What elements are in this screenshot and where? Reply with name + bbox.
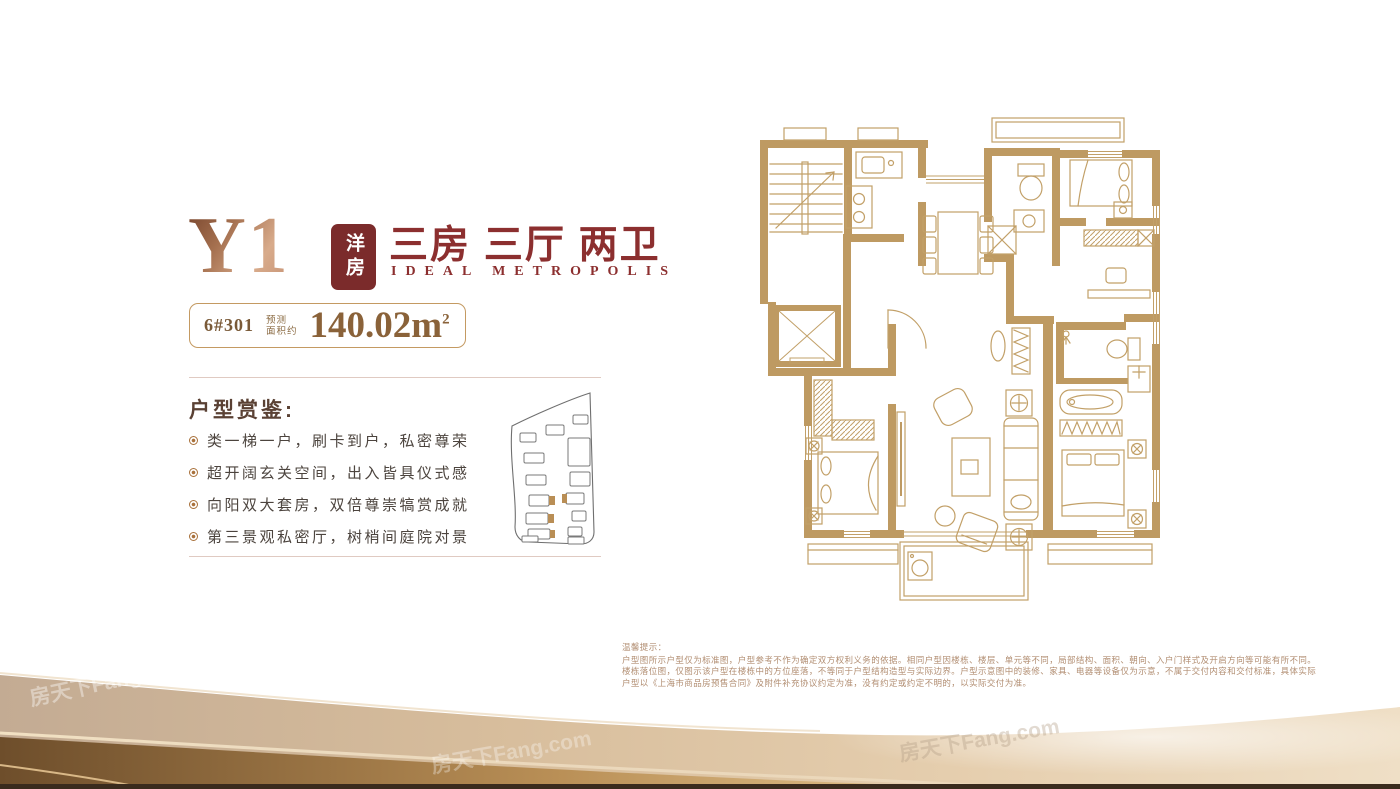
unit-type-badge: 洋房	[331, 224, 376, 290]
floorplan-poster: Y1 洋房 三房 三厅 两卫 IDEAL METROPOLIS 6#301 预测…	[0, 0, 1400, 789]
list-item: 类一梯一户，刷卡到户，私密尊荣	[189, 430, 470, 451]
bullet-icon	[189, 436, 198, 445]
washing-machine	[908, 552, 932, 580]
staircase	[770, 162, 842, 234]
bullet-icon	[189, 468, 198, 477]
page-title: 三房 三厅 两卫	[389, 214, 661, 270]
bathtub	[1060, 390, 1122, 436]
study-area	[1084, 230, 1154, 298]
area-approx-label: 预测 面积约	[266, 315, 298, 337]
bullet-icon	[189, 532, 198, 541]
area-box: 6#301 预测 面积约 140.02m2	[189, 303, 466, 348]
area-value: 140.02m2	[310, 307, 450, 344]
dining-table	[923, 212, 993, 274]
hall-cabinet	[991, 328, 1030, 374]
list-item: 第三景观私密厅，树梢间庭院对景	[189, 526, 470, 547]
list-item: 向阳双大套房，双倍尊崇犒赏成就	[189, 494, 470, 515]
floorplan-drawing	[740, 106, 1205, 621]
windows	[806, 152, 1160, 538]
divider-top	[189, 377, 601, 378]
bedroom-bottom-right	[1062, 440, 1146, 528]
features-list: 类一梯一户，刷卡到户，私密尊荣 超开阔玄关空间，出入皆具仪式感 向阳双大套房，双…	[189, 430, 470, 558]
page-subtitle: IDEAL METROPOLIS	[391, 264, 677, 280]
building-location-diagram	[496, 386, 602, 550]
gold-ribbon-decoration	[0, 619, 1400, 789]
bullet-icon	[189, 500, 198, 509]
features-heading: 户型赏鉴:	[189, 394, 295, 424]
elevator	[776, 308, 838, 364]
divider-bottom	[189, 556, 601, 557]
building-room-number: 6#301	[204, 315, 254, 336]
list-item: 超开阔玄关空间，出入皆具仪式感	[189, 462, 470, 483]
bedroom-bottom-left	[806, 380, 878, 524]
unit-code: Y1	[188, 206, 290, 286]
kitchen	[846, 152, 902, 228]
bottom-bar	[0, 784, 1400, 789]
bathroom-center	[988, 164, 1044, 254]
top-balcony	[784, 118, 1124, 142]
living-room	[897, 386, 1038, 553]
bedroom-top-right	[1070, 160, 1132, 218]
